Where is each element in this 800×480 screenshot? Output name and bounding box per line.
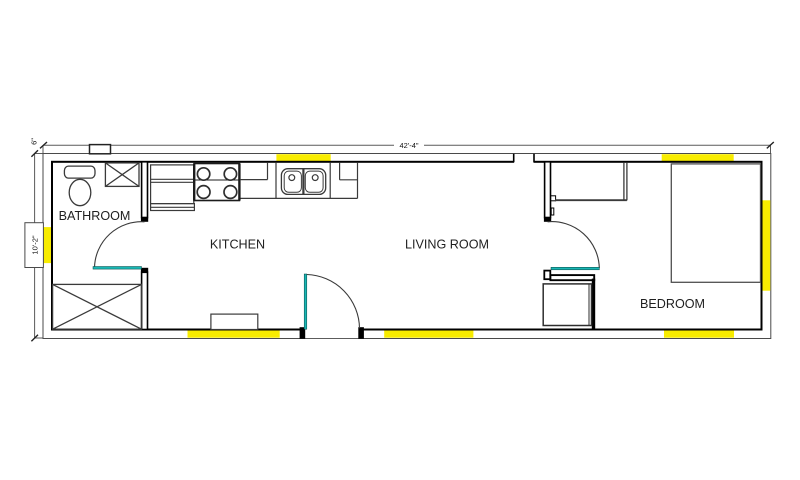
svg-text:BATHROOM: BATHROOM — [59, 209, 131, 223]
svg-text:10'-2": 10'-2" — [30, 235, 39, 254]
svg-text:42'-4": 42'-4" — [399, 141, 418, 150]
svg-text:LIVING ROOM: LIVING ROOM — [405, 237, 489, 251]
svg-text:BEDROOM: BEDROOM — [640, 297, 705, 311]
svg-text:KITCHEN: KITCHEN — [210, 238, 265, 252]
svg-text:6": 6" — [30, 138, 39, 145]
